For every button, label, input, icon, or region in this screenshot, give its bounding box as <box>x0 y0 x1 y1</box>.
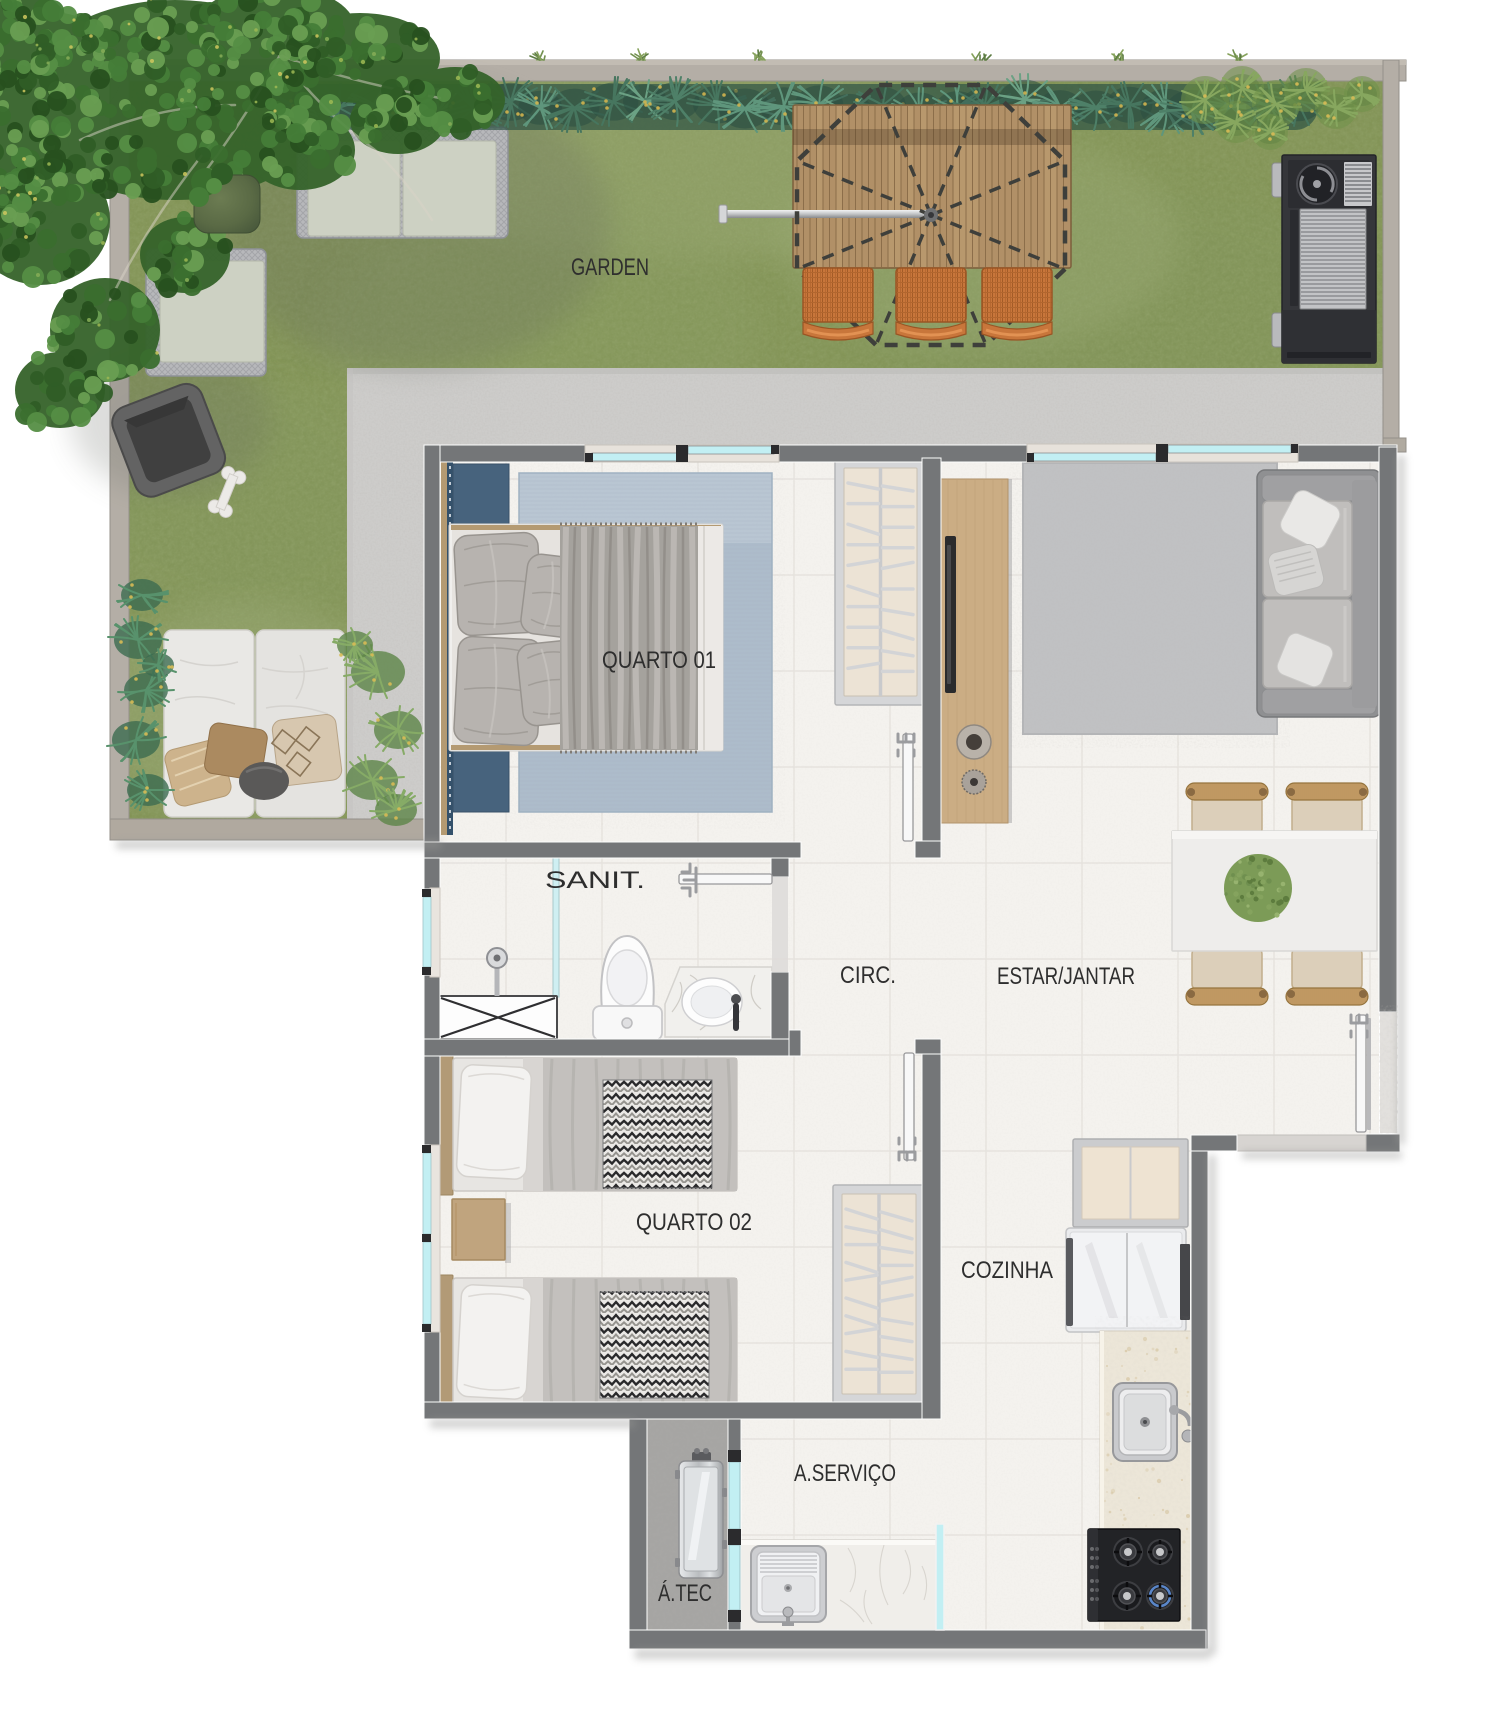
svg-text:ESTAR/JANTAR: ESTAR/JANTAR <box>997 963 1135 990</box>
svg-text:Á.TEC: Á.TEC <box>658 1580 712 1607</box>
svg-text:COZINHA: COZINHA <box>961 1257 1053 1284</box>
svg-text:QUARTO 02: QUARTO 02 <box>636 1209 752 1236</box>
svg-text:GARDEN: GARDEN <box>571 254 649 281</box>
svg-text:QUARTO 01: QUARTO 01 <box>602 647 716 674</box>
svg-text:A.SERVIÇO: A.SERVIÇO <box>794 1460 896 1487</box>
svg-text:CIRC.: CIRC. <box>840 962 896 989</box>
svg-text:SANIT.: SANIT. <box>545 867 645 894</box>
